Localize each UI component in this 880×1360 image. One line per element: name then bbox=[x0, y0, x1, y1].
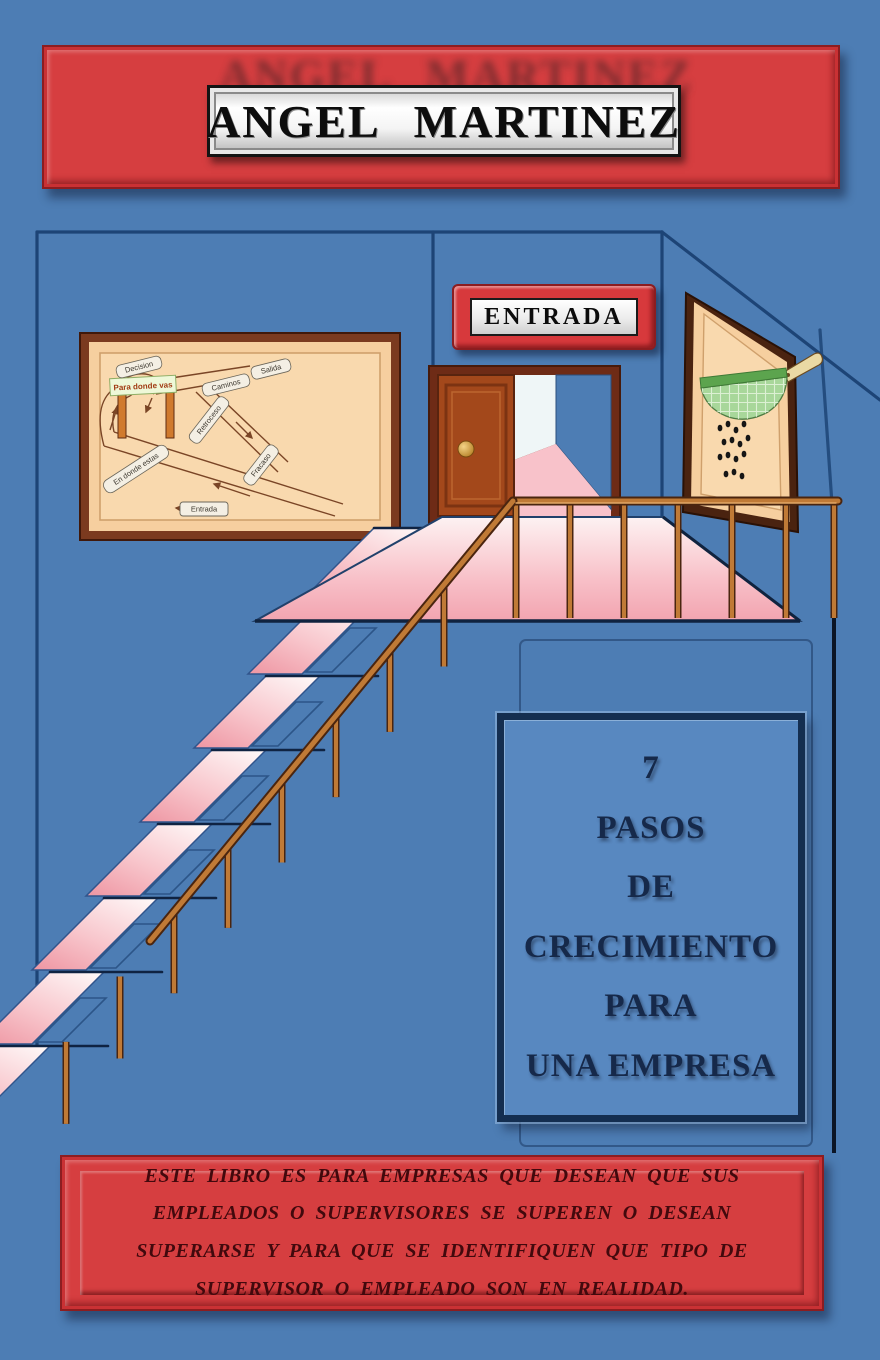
entrance-sign: ENTRADA bbox=[452, 284, 656, 350]
stair-tread bbox=[0, 972, 104, 1044]
author-banner: ANGEL MARTINEZ ANGEL MARTINEZ bbox=[42, 45, 840, 189]
map-picture-frame: Para donde vas Decision Caminos Salida bbox=[80, 333, 400, 540]
author-nameplate: ANGEL MARTINEZ bbox=[207, 85, 681, 157]
svg-text:Entrada: Entrada bbox=[191, 504, 218, 513]
stair-tread bbox=[32, 898, 158, 970]
title-line-6: UNA EMPRESA bbox=[526, 1048, 776, 1085]
door-leaf bbox=[438, 375, 514, 516]
map-label-para-donde-vas: Para donde vas bbox=[110, 375, 177, 395]
blurb-text: ESTE LIBRO ES PARA EMPRESAS QUE DESEAN Q… bbox=[118, 1158, 766, 1308]
title-line-2: PASOS bbox=[597, 810, 706, 847]
book-cover: Para donde vas Decision Caminos Salida bbox=[0, 0, 880, 1360]
title-line-5: PARA bbox=[604, 988, 697, 1025]
stair-tread bbox=[0, 1046, 50, 1118]
blurb-plate: ESTE LIBRO ES PARA EMPRESAS QUE DESEAN Q… bbox=[80, 1171, 804, 1295]
stair-tread bbox=[194, 676, 320, 748]
title-line-1: 7 bbox=[642, 750, 660, 787]
title-line-4: CRECIMIENTO bbox=[524, 929, 778, 966]
strainer-picture-frame bbox=[683, 293, 822, 532]
stair-tread bbox=[140, 750, 266, 822]
door-knob bbox=[458, 441, 474, 457]
map-label-entrada: Entrada bbox=[180, 502, 228, 516]
stair-rail bbox=[150, 501, 513, 941]
title-line-3: DE bbox=[627, 869, 675, 906]
entrance-sign-text: ENTRADA bbox=[484, 304, 624, 331]
author-name: ANGEL MARTINEZ bbox=[207, 95, 681, 148]
entrance-sign-plate: ENTRADA bbox=[470, 298, 638, 336]
title-panel: 7 PASOS DE CRECIMIENTO PARA UNA EMPRESA bbox=[497, 713, 805, 1122]
blurb-banner: ESTE LIBRO ES PARA EMPRESAS QUE DESEAN Q… bbox=[60, 1155, 824, 1311]
